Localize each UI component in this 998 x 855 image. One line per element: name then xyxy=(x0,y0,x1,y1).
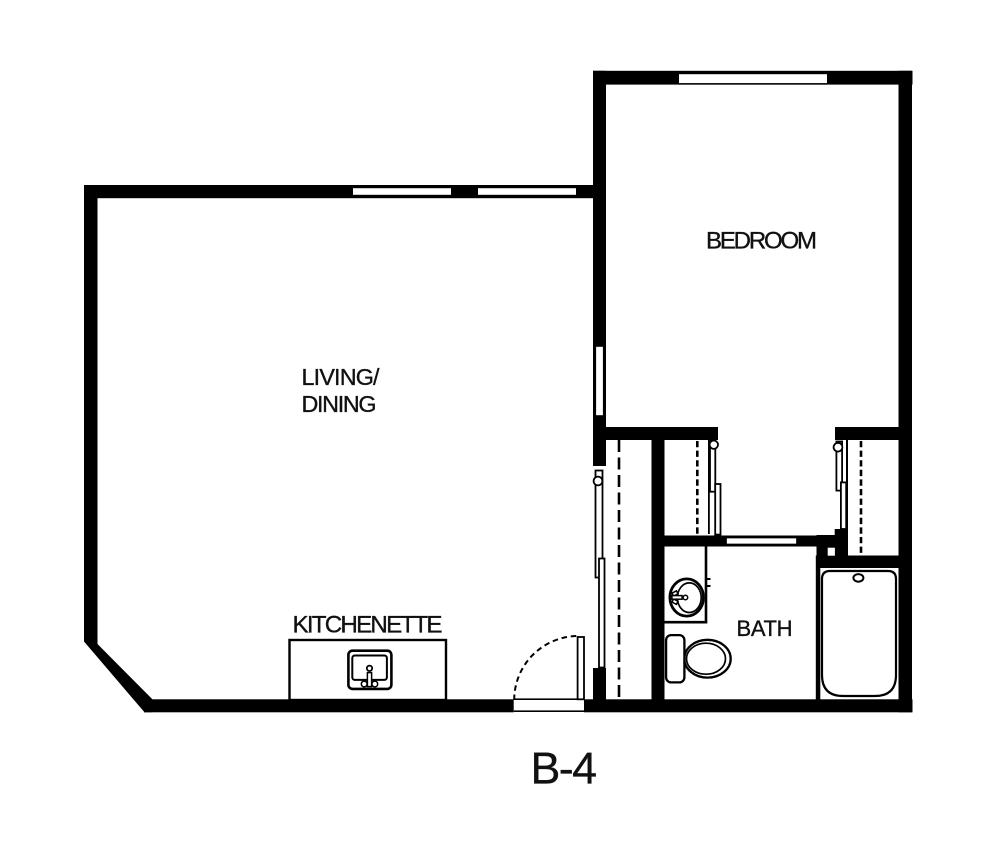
svg-text:DINING: DINING xyxy=(302,391,377,417)
svg-text:LIVING/: LIVING/ xyxy=(302,364,381,390)
svg-text:BATH: BATH xyxy=(737,616,793,641)
svg-text:B-4: B-4 xyxy=(531,744,598,794)
svg-text:BEDROOM: BEDROOM xyxy=(706,227,817,254)
svg-text:KITCHENETTE: KITCHENETTE xyxy=(293,612,443,639)
